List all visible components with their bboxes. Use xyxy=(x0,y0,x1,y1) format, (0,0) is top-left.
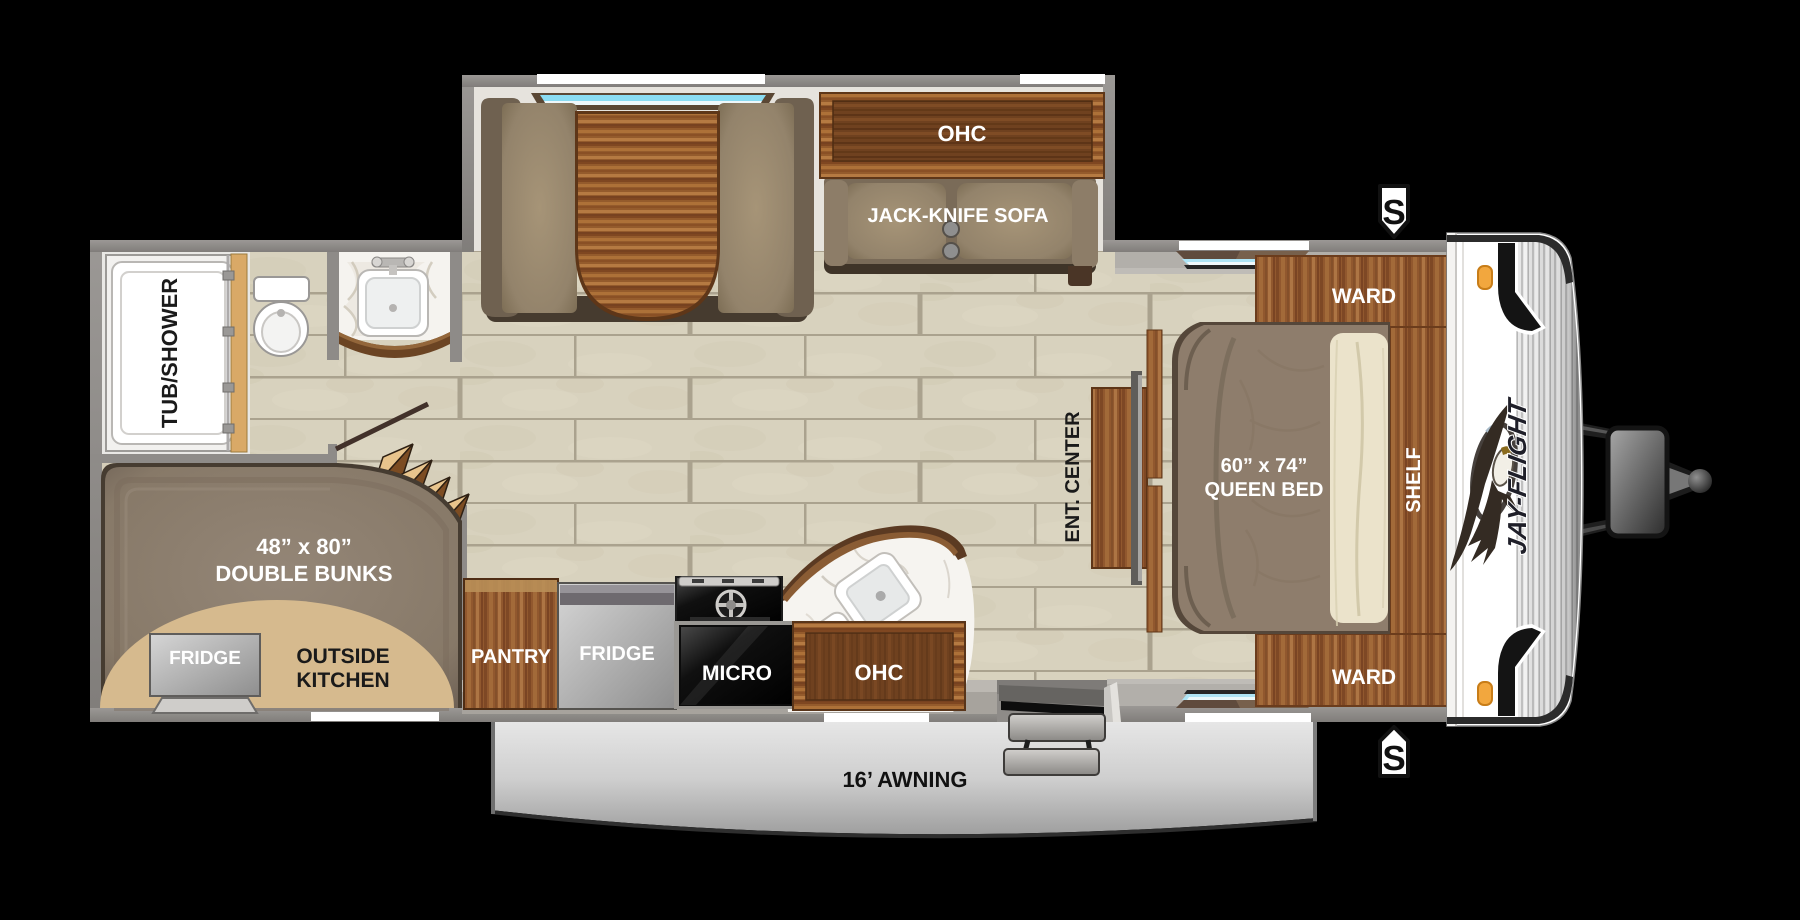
svg-text:ENT. CENTER: ENT. CENTER xyxy=(1062,411,1084,543)
svg-text:S: S xyxy=(1382,193,1405,232)
svg-text:TUB/SHOWER: TUB/SHOWER xyxy=(157,278,182,428)
svg-text:16’ AWNING: 16’ AWNING xyxy=(842,767,967,792)
svg-text:S: S xyxy=(1382,739,1405,778)
svg-text:60” x 74”: 60” x 74” xyxy=(1221,455,1308,477)
svg-text:OHC: OHC xyxy=(938,121,987,146)
svg-text:PANTRY: PANTRY xyxy=(471,646,552,668)
svg-text:MICRO: MICRO xyxy=(702,662,772,685)
svg-text:FRIDGE: FRIDGE xyxy=(579,643,655,665)
svg-text:QUEEN BED: QUEEN BED xyxy=(1205,479,1324,501)
svg-text:FRIDGE: FRIDGE xyxy=(169,648,241,669)
svg-text:SHELF: SHELF xyxy=(1403,447,1425,513)
svg-text:JACK-KNIFE SOFA: JACK-KNIFE SOFA xyxy=(867,205,1048,227)
svg-text:OUTSIDE: OUTSIDE xyxy=(296,645,389,668)
svg-text:DOUBLE BUNKS: DOUBLE BUNKS xyxy=(215,561,392,586)
svg-text:48” x 80”: 48” x 80” xyxy=(256,534,351,559)
svg-text:JAY-FLIGHT: JAY-FLIGHT xyxy=(1502,395,1532,556)
svg-text:WARD: WARD xyxy=(1332,666,1396,689)
svg-text:WARD: WARD xyxy=(1332,285,1396,308)
svg-text:KITCHEN: KITCHEN xyxy=(296,669,389,692)
svg-text:OHC: OHC xyxy=(855,660,904,685)
